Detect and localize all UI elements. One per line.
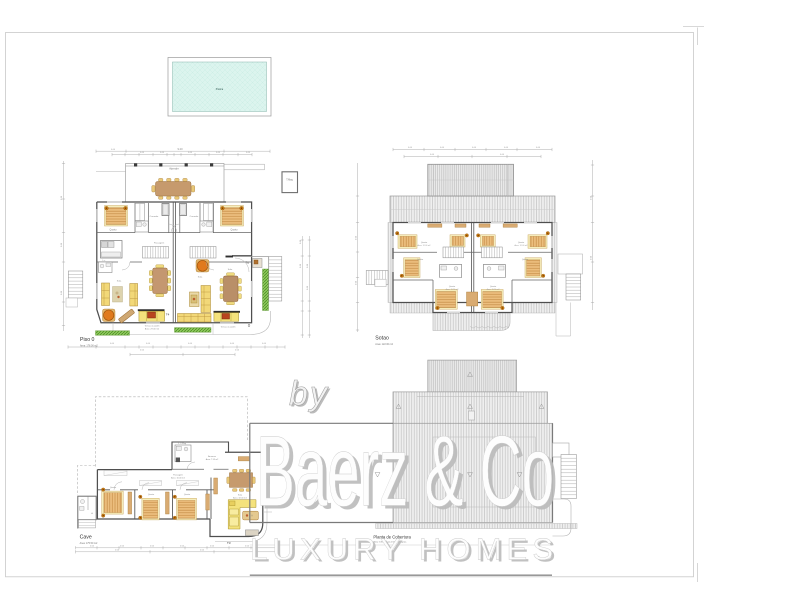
svg-text:Quarto: Quarto: [230, 229, 238, 232]
svg-text:Sala: Sala: [228, 269, 233, 271]
svg-text:Piscina: Piscina: [216, 89, 224, 91]
svg-text:Piso 0: Piso 0: [80, 337, 95, 343]
svg-text:T.Maq: T.Maq: [286, 179, 293, 182]
svg-text:Quarto: Quarto: [148, 493, 155, 496]
svg-text:Arrumos: Arrumos: [208, 455, 216, 458]
svg-text:Area: 12.00 m2: Area: 12.00 m2: [418, 244, 431, 247]
svg-text:Area: 12.00 m2: Area: 12.00 m2: [515, 244, 528, 247]
svg-text:Quarto: Quarto: [109, 229, 117, 232]
svg-text:T4: T4: [166, 313, 170, 317]
svg-text:Area: 175.50 m2: Area: 175.50 m2: [80, 542, 98, 545]
svg-text:Quarto: Quarto: [490, 285, 497, 288]
svg-text:Quarto: Quarto: [110, 486, 117, 489]
svg-text:Quarto: Quarto: [184, 493, 191, 496]
svg-text:Area: 122.00 m2: Area: 122.00 m2: [375, 343, 393, 346]
svg-text:T3: T3: [227, 541, 231, 545]
svg-text:Baerz & Co: Baerz & Co: [256, 416, 554, 528]
svg-text:Quarto: Quarto: [522, 258, 529, 261]
svg-text:9.20: 9.20: [177, 147, 183, 151]
svg-text:Area: 7.95 m2: Area: 7.95 m2: [206, 458, 219, 461]
svg-text:Area: 32.00 m2: Area: 32.00 m2: [233, 497, 248, 500]
svg-text:I.s.: I.s.: [103, 260, 106, 262]
svg-text:Sala: Sala: [198, 277, 203, 279]
svg-text:Terraco e jardim: Terraco e jardim: [221, 326, 236, 329]
svg-text:Area: 11.70 m2: Area: 11.70 m2: [487, 288, 500, 291]
svg-text:Quarto: Quarto: [421, 241, 428, 244]
svg-text:Sotao: Sotao: [375, 336, 389, 342]
svg-text:Area: 29.00 m2: Area: 29.00 m2: [145, 327, 160, 330]
svg-text:Quarto: Quarto: [417, 258, 424, 261]
svg-text:Sala: Sala: [117, 281, 122, 283]
svg-text:Alpendre: Alpendre: [169, 168, 179, 171]
svg-text:Cave: Cave: [80, 535, 92, 541]
svg-text:by: by: [289, 375, 329, 413]
svg-text:Terraco e jardim: Terraco e jardim: [145, 325, 160, 328]
svg-text:Quarto: Quarto: [518, 241, 525, 244]
svg-text:Passagem: Passagem: [173, 475, 183, 477]
svg-text:Area: 10.00 m2: Area: 10.00 m2: [171, 477, 186, 480]
svg-text:Quarto: Quarto: [449, 285, 456, 288]
svg-text:L. C.Maq: L. C.Maq: [178, 443, 186, 445]
svg-text:Corredor: Corredor: [150, 215, 159, 218]
svg-text:Passagem: Passagem: [154, 243, 165, 245]
svg-text:Area: 11.70 m2: Area: 11.70 m2: [446, 288, 459, 291]
svg-text:Corredor: Corredor: [190, 215, 199, 218]
